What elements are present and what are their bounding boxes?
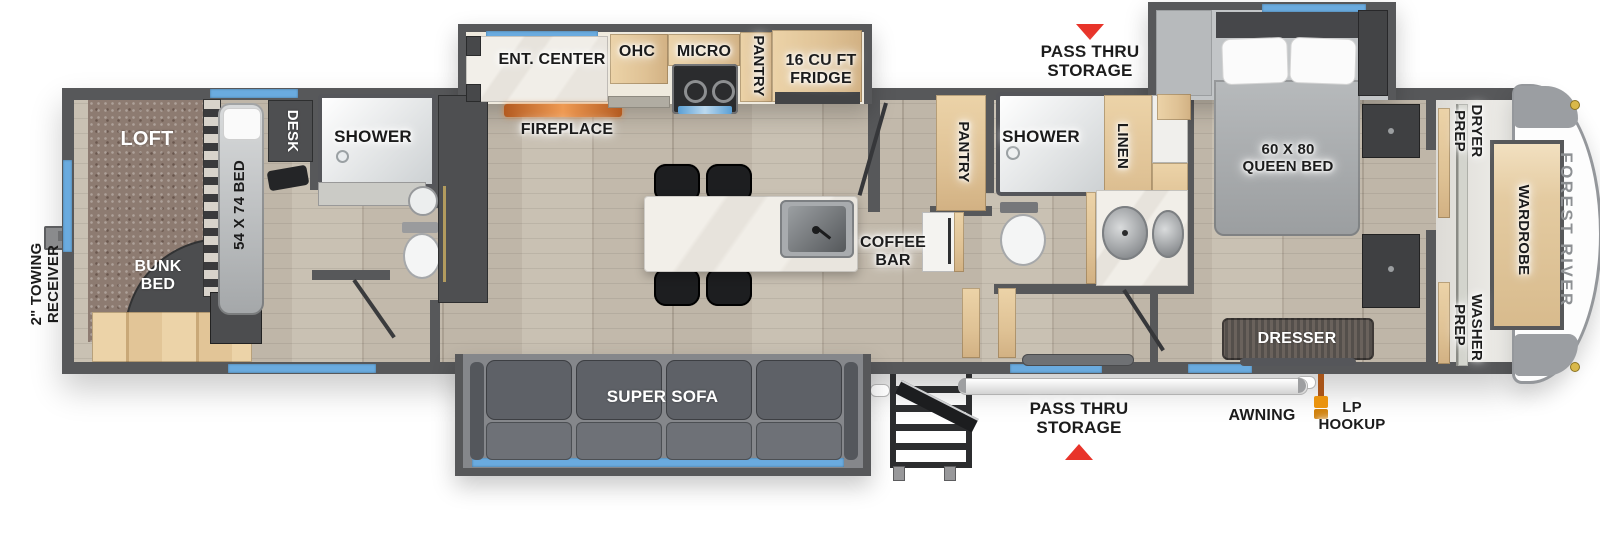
stove-burner — [684, 80, 707, 103]
sofa-seat-cushion — [486, 422, 572, 460]
wall-bedroom-right-top — [1426, 88, 1436, 150]
fridge-label: 16 CU FT FRIDGE — [777, 52, 865, 88]
bed-54x74-pillow — [223, 108, 261, 140]
pass-thru-arrow-top — [1076, 24, 1104, 40]
sofa-seat-cushion — [756, 422, 842, 460]
window — [1262, 4, 1366, 12]
coffee-bar-wood-side — [954, 212, 964, 272]
wall-bedroom-right-bottom — [1426, 230, 1436, 374]
rear-shower-head — [336, 150, 349, 163]
queen-headboard — [1216, 12, 1358, 38]
pass-thru-bottom-label: PASS THRU STORAGE — [1019, 399, 1139, 437]
ent-center-label: ENT. CENTER — [494, 51, 610, 69]
towing-receiver-label: 2" TOWING RECEIVER — [29, 224, 63, 344]
fireplace-label: FIREPLACE — [517, 121, 617, 139]
window — [228, 364, 376, 373]
dryer-prep-cabinet — [1438, 108, 1450, 218]
bedroom-corner-cabinet — [1157, 94, 1191, 120]
porch-light — [870, 384, 890, 397]
awning-label: AWNING — [1222, 407, 1302, 425]
wall-rear-bath-bottom — [312, 270, 390, 280]
cap-hinge — [1570, 100, 1580, 110]
micro-label: MICRO — [674, 43, 734, 61]
lp-hookup-pole — [1318, 372, 1324, 398]
lp-hookup-label: LP HOOKUP — [1314, 400, 1390, 434]
linen-label: LINEN — [1112, 119, 1130, 173]
washer-prep-cabinet — [1438, 282, 1450, 364]
stove-burner — [712, 80, 735, 103]
super-sofa-label: SUPER SOFA — [590, 387, 735, 406]
dryer-prep-label: DRYER PREP — [1450, 100, 1484, 162]
sofa-seat-cushion — [666, 422, 752, 460]
loft-label: LOFT — [112, 128, 182, 150]
entry-post-2 — [998, 288, 1016, 358]
coffee-bar-handle — [948, 218, 951, 264]
tv-corner-2 — [466, 84, 481, 102]
awning — [958, 378, 1308, 395]
vanity-sink-drain — [1122, 230, 1128, 236]
ohc-label: OHC — [612, 43, 662, 61]
mid-pantry-label: PANTRY — [953, 119, 971, 185]
hall-step — [1022, 354, 1134, 366]
sofa-armrest — [844, 362, 858, 460]
dining-chair — [654, 268, 700, 306]
entry-post — [962, 288, 980, 358]
dining-chair — [706, 268, 752, 306]
mid-toilet — [1000, 214, 1046, 266]
rear-shower-label: SHOWER — [328, 127, 418, 146]
oven-front — [678, 106, 732, 114]
entry-step-foot — [893, 466, 905, 481]
sofa-seat-cushion — [576, 422, 662, 460]
entry-step-foot — [944, 466, 956, 481]
cap-hinge — [1570, 362, 1580, 372]
floorplan-canvas: LOFT BUNK BED 54 X 74 BED DESK SHOWER 2"… — [0, 0, 1600, 559]
queen-pillow — [1289, 37, 1357, 85]
dresser-label: DRESSER — [1257, 330, 1337, 348]
bed-54x74-label: 54 X 74 BED — [232, 150, 250, 260]
nightstand-handle — [1388, 266, 1394, 272]
ent-center-counter — [466, 36, 608, 102]
fireplace — [504, 104, 622, 117]
rear-toilet — [403, 233, 441, 279]
washer-prep-label: WASHER PREP — [1450, 294, 1484, 356]
kitchen-pantry-label: PANTRY — [748, 33, 766, 99]
cap-corner-top — [1514, 86, 1578, 128]
window — [63, 160, 72, 252]
sofa-armrest — [470, 362, 484, 460]
brand-label: FOREST RIVER — [1556, 140, 1576, 320]
desk-label: DESK — [282, 106, 300, 156]
mid-toilet-tank — [1000, 202, 1038, 213]
bed-slide-wall — [1156, 10, 1212, 96]
tv-corner — [466, 36, 481, 56]
awning-end — [958, 378, 966, 393]
nightstand-handle — [1388, 128, 1394, 134]
wall-pantry-shower — [986, 95, 994, 193]
pass-thru-arrow-bottom — [1065, 444, 1093, 460]
sofa-back-cushion — [486, 360, 572, 420]
kitchen-counter — [608, 96, 670, 108]
cap-corner-bottom — [1514, 334, 1578, 376]
mid-shower-label: SHOWER — [996, 127, 1086, 146]
fridge-front — [775, 92, 860, 104]
vanity-sink-2 — [1152, 210, 1184, 258]
wall-bed-kitchen-bottom — [430, 300, 440, 374]
rear-wardrobe-handle — [443, 186, 446, 282]
coffee-bar-label: COFFEE BAR — [853, 234, 933, 270]
dresser-bench — [1240, 358, 1356, 366]
queen-bed-label: 60 X 80 QUEEN BED — [1238, 142, 1338, 176]
sofa-back-cushion — [756, 360, 842, 420]
wardrobe-label: WARDROBE — [1513, 184, 1531, 276]
bunk-bed-label: BUNK BED — [125, 258, 191, 294]
mid-shower-head — [1006, 146, 1020, 160]
pass-thru-top-label: PASS THRU STORAGE — [1030, 42, 1150, 80]
queen-pillow — [1221, 37, 1289, 85]
vanity-wood-side — [1086, 192, 1096, 284]
bed-slide-cabinet — [1358, 10, 1388, 96]
rear-bath-sink — [408, 186, 438, 216]
rear-toilet-tank — [402, 222, 438, 233]
window — [210, 89, 298, 98]
